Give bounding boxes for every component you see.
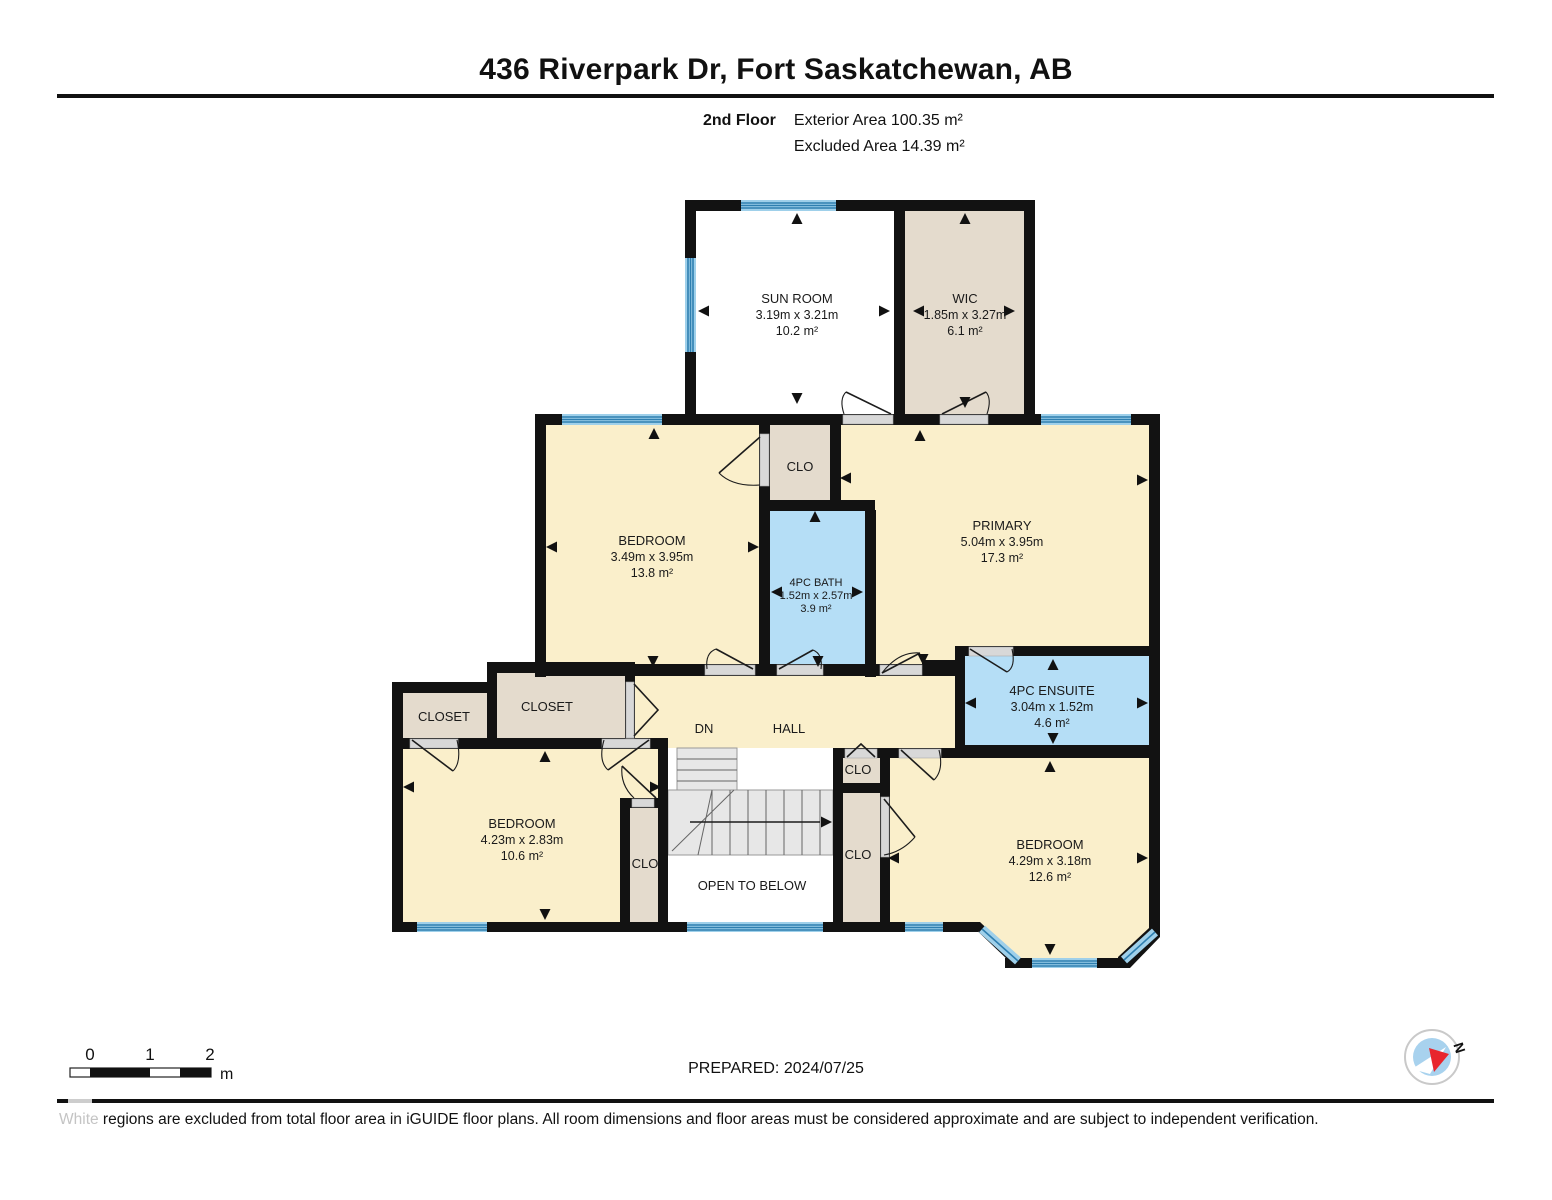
- bedroom-br-label: BEDROOM: [1016, 837, 1083, 852]
- stair-flight-upper: [677, 748, 737, 790]
- bedroom-br-dims: 4.29m x 3.18m: [1009, 854, 1092, 868]
- bedroom-mid-area: 13.8 m²: [631, 566, 673, 580]
- bedroom-bl-dims: 4.23m x 2.83m: [481, 833, 564, 847]
- sun-room-label: SUN ROOM: [761, 291, 833, 306]
- bath-label: 4PC BATH: [790, 577, 843, 589]
- bedroom-mid-dims: 3.49m x 3.95m: [611, 550, 694, 564]
- sun-room-dims: 3.19m x 3.21m: [756, 308, 839, 322]
- wic-dims: 1.85m x 3.27m: [924, 308, 1007, 322]
- hall-label: HALL: [773, 721, 806, 736]
- primary-label: PRIMARY: [973, 518, 1032, 533]
- clo-right-top-label: CLO: [845, 762, 872, 777]
- bedroom-bl-area: 10.6 m²: [501, 849, 543, 863]
- window-sunroom-top: [741, 200, 836, 211]
- floor-plan-canvas: SUN ROOM 3.19m x 3.21m 10.2 m² WIC 1.85m…: [0, 0, 1552, 1200]
- bath-dims: 1.52m x 2.57m: [780, 590, 853, 602]
- window-sunroom-left: [685, 258, 696, 352]
- ensuite-label: 4PC ENSUITE: [1009, 683, 1095, 698]
- stairs-dn-label: DN: [695, 721, 714, 736]
- bedroom-bl-label: BEDROOM: [488, 816, 555, 831]
- window-primary: [1041, 414, 1131, 425]
- disclaimer: White regions are excluded from total fl…: [59, 1111, 1499, 1129]
- clo-stairs-label: CLO: [632, 856, 659, 871]
- primary-area: 17.3 m²: [981, 551, 1023, 565]
- window-open-below: [687, 922, 823, 932]
- ensuite-area: 4.6 m²: [1034, 716, 1069, 730]
- wic-label: WIC: [952, 291, 977, 306]
- prepared-date: PREPARED: 2024/07/25: [0, 1060, 1552, 1078]
- window-bedroom-mid: [562, 414, 662, 425]
- ensuite-dims: 3.04m x 1.52m: [1011, 700, 1094, 714]
- closet-mid-label: CLOSET: [521, 699, 573, 714]
- hall-floor: [635, 676, 955, 748]
- disclaimer-text: regions are excluded from total floor ar…: [99, 1111, 1319, 1128]
- bedroom-mid-label: BEDROOM: [618, 533, 685, 548]
- clo-center-label: CLO: [787, 459, 814, 474]
- window-bay-left: [905, 922, 943, 932]
- footer-divider: [57, 1099, 1494, 1103]
- clo-right-label: CLO: [845, 847, 872, 862]
- closet-left-label: CLOSET: [418, 709, 470, 724]
- primary-dims: 5.04m x 3.95m: [961, 535, 1044, 549]
- window-bedroom-bl: [417, 922, 487, 932]
- floorplan-page: 436 Riverpark Dr, Fort Saskatchewan, AB …: [0, 0, 1552, 1200]
- wic-area: 6.1 m²: [947, 324, 982, 338]
- bedroom-br-area: 12.6 m²: [1029, 870, 1071, 884]
- window-bay-bottom: [1032, 958, 1097, 968]
- sun-room-area: 10.2 m²: [776, 324, 818, 338]
- footer-divider-notch: [68, 1099, 92, 1103]
- bath-area: 3.9 m²: [800, 603, 832, 615]
- open-below-label: OPEN TO BELOW: [698, 878, 807, 893]
- disclaimer-highlight: White: [59, 1111, 99, 1128]
